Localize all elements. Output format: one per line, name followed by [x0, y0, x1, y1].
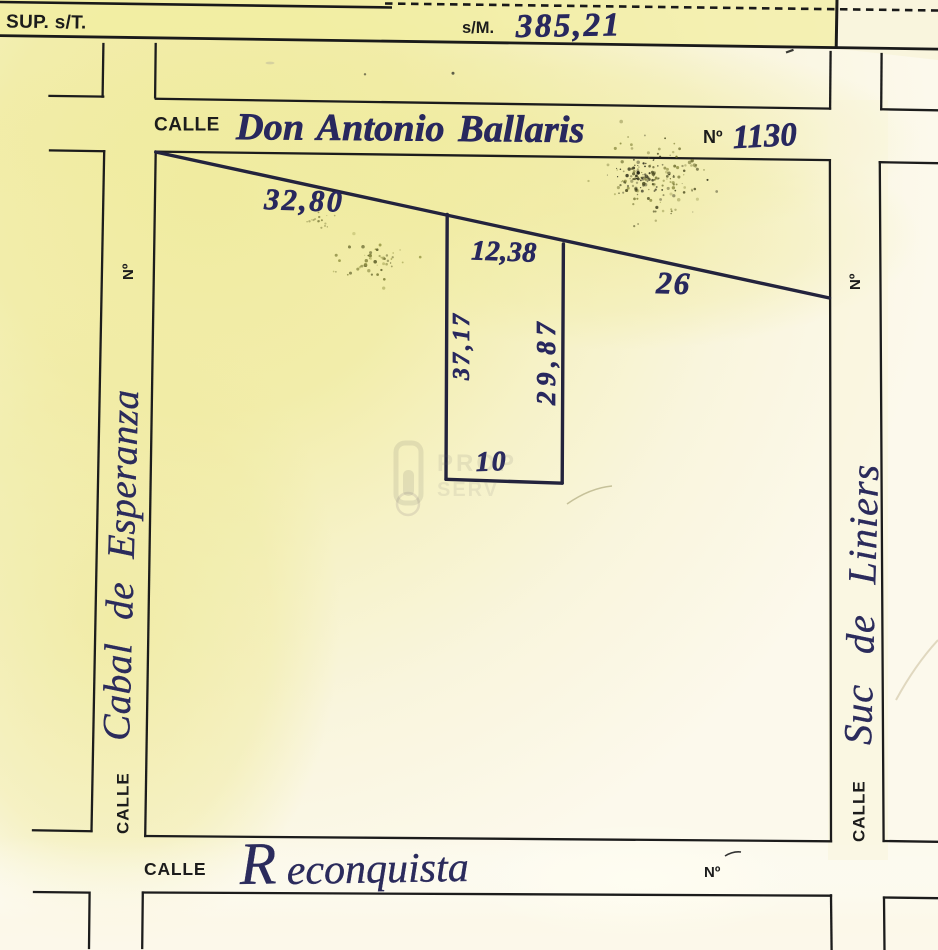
- svg-text:Nº: Nº: [120, 263, 137, 280]
- svg-text:Nº: Nº: [704, 864, 721, 881]
- svg-text:SERV: SERV: [437, 479, 499, 501]
- svg-text:Nº: Nº: [847, 273, 864, 290]
- svg-text:s/M.: s/M.: [462, 19, 494, 37]
- svg-text:R: R: [238, 830, 277, 897]
- svg-text:29,87: 29,87: [531, 317, 561, 406]
- svg-text:SUP. s/T.: SUP. s/T.: [6, 12, 87, 34]
- svg-text:Suc de Liniers: Suc de Liniers: [835, 463, 887, 745]
- svg-text:Nº: Nº: [703, 127, 723, 147]
- svg-text:37,17: 37,17: [449, 311, 475, 381]
- svg-text:CALLE: CALLE: [850, 780, 869, 842]
- svg-text:1130: 1130: [732, 117, 798, 156]
- svg-text:Don Antonio Ballaris: Don Antonio Ballaris: [235, 106, 585, 151]
- svg-text:32,80: 32,80: [263, 183, 345, 219]
- svg-text:385,21: 385,21: [515, 7, 622, 45]
- svg-text:CALLE: CALLE: [144, 859, 206, 879]
- svg-text:econquista: econquista: [286, 845, 469, 894]
- svg-text:12,38: 12,38: [471, 235, 538, 268]
- svg-text:26: 26: [655, 265, 692, 301]
- svg-text:Cabal de Esperanza: Cabal de Esperanza: [95, 389, 147, 741]
- svg-text:PROP: PROP: [437, 450, 517, 477]
- svg-text:CALLE: CALLE: [154, 115, 220, 136]
- svg-text:CALLE: CALLE: [114, 772, 133, 834]
